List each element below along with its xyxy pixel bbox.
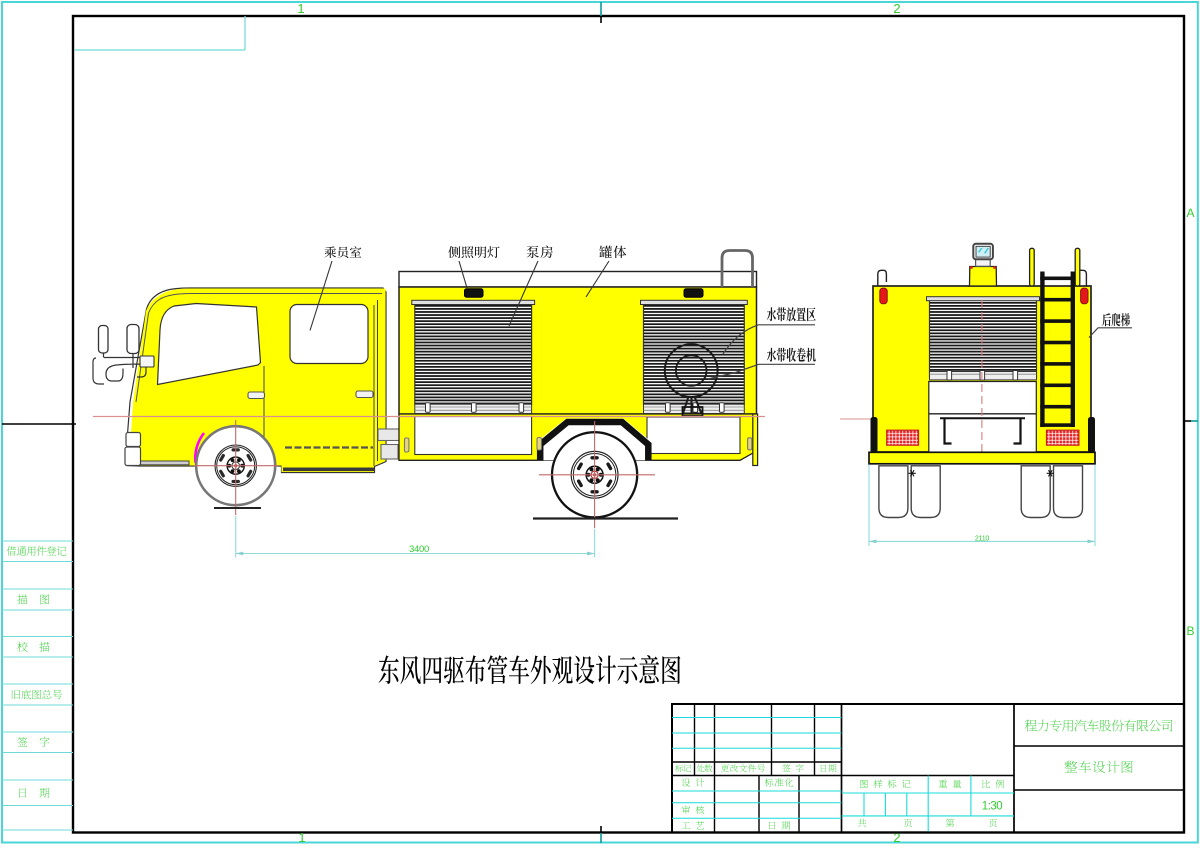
svg-text:2: 2	[893, 1, 900, 16]
svg-text:1: 1	[297, 1, 304, 16]
svg-text:B: B	[1186, 624, 1194, 638]
svg-text:3400: 3400	[409, 544, 429, 555]
svg-text:2110: 2110	[975, 533, 990, 542]
svg-text:1: 1	[298, 830, 305, 845]
svg-text:A: A	[1186, 206, 1194, 220]
svg-text:1:30: 1:30	[982, 801, 1002, 813]
